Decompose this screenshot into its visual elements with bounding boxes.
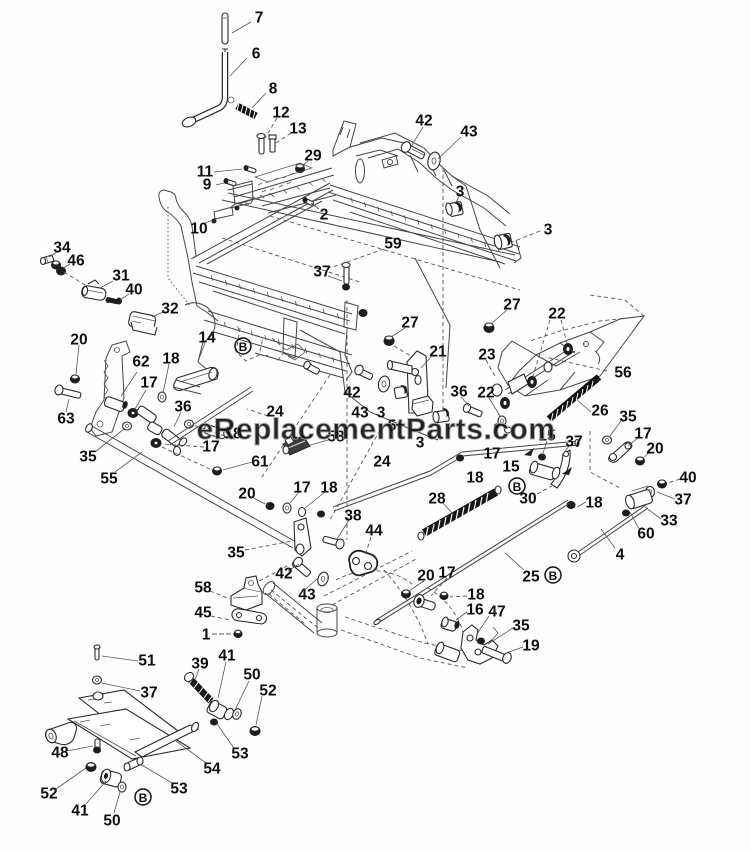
svg-text:56: 56 <box>614 365 632 382</box>
svg-text:45: 45 <box>194 605 212 622</box>
svg-text:47: 47 <box>488 604 505 621</box>
svg-text:52: 52 <box>259 683 276 700</box>
svg-text:44: 44 <box>365 523 383 540</box>
svg-text:61: 61 <box>251 454 269 471</box>
svg-text:16: 16 <box>466 602 484 619</box>
svg-text:42: 42 <box>343 385 360 402</box>
svg-text:37: 37 <box>140 685 157 702</box>
svg-text:19: 19 <box>522 638 540 655</box>
svg-text:40: 40 <box>125 282 142 299</box>
svg-text:42: 42 <box>275 566 292 583</box>
svg-text:7: 7 <box>255 10 264 27</box>
svg-text:2: 2 <box>320 207 329 224</box>
svg-text:36: 36 <box>174 399 192 416</box>
svg-text:58: 58 <box>194 580 212 597</box>
svg-text:22: 22 <box>477 385 494 402</box>
svg-text:18: 18 <box>585 495 603 512</box>
svg-text:18: 18 <box>466 470 484 487</box>
svg-text:41: 41 <box>71 803 89 820</box>
svg-text:17: 17 <box>438 565 455 582</box>
svg-text:35: 35 <box>619 409 637 426</box>
svg-text:13: 13 <box>289 121 307 138</box>
svg-text:1: 1 <box>202 627 211 644</box>
svg-text:24: 24 <box>373 454 391 471</box>
svg-text:20: 20 <box>70 332 87 349</box>
svg-text:36: 36 <box>450 384 468 401</box>
svg-text:27: 27 <box>401 315 418 332</box>
svg-text:42: 42 <box>415 113 432 130</box>
svg-text:41: 41 <box>218 648 236 665</box>
svg-text:17: 17 <box>483 446 500 463</box>
svg-text:35: 35 <box>227 545 245 562</box>
svg-text:17: 17 <box>293 480 310 497</box>
svg-text:9: 9 <box>203 177 212 194</box>
svg-text:3: 3 <box>544 222 553 239</box>
svg-text:B: B <box>549 569 558 583</box>
svg-text:B: B <box>513 480 522 494</box>
svg-text:51: 51 <box>138 653 156 670</box>
svg-text:23: 23 <box>478 347 496 364</box>
svg-text:43: 43 <box>298 587 316 604</box>
svg-text:28: 28 <box>428 491 446 508</box>
svg-text:29: 29 <box>304 148 322 165</box>
svg-text:40: 40 <box>679 470 696 487</box>
svg-text:25: 25 <box>522 569 540 586</box>
svg-text:52: 52 <box>40 786 57 803</box>
svg-text:6: 6 <box>252 46 261 63</box>
svg-text:12: 12 <box>272 105 289 122</box>
svg-text:37: 37 <box>313 264 330 281</box>
svg-text:55: 55 <box>100 471 118 488</box>
svg-text:63: 63 <box>57 411 75 428</box>
svg-text:3: 3 <box>456 184 465 201</box>
svg-text:59: 59 <box>384 236 402 253</box>
svg-text:eReplacementParts.com: eReplacementParts.com <box>197 413 556 446</box>
svg-text:53: 53 <box>170 781 188 798</box>
svg-text:10: 10 <box>190 221 207 238</box>
svg-text:20: 20 <box>417 568 434 585</box>
svg-text:26: 26 <box>591 403 609 420</box>
svg-text:8: 8 <box>269 81 278 98</box>
svg-text:60: 60 <box>637 526 654 543</box>
svg-text:54: 54 <box>203 761 221 778</box>
svg-text:46: 46 <box>67 253 85 270</box>
svg-text:14: 14 <box>198 330 216 347</box>
svg-text:18: 18 <box>162 351 180 368</box>
svg-text:22: 22 <box>548 306 565 323</box>
svg-text:50: 50 <box>103 813 120 830</box>
svg-text:37: 37 <box>565 434 582 451</box>
svg-text:27: 27 <box>503 297 520 314</box>
svg-text:37: 37 <box>674 492 691 509</box>
svg-text:21: 21 <box>429 344 447 361</box>
svg-text:38: 38 <box>344 508 362 525</box>
svg-text:35: 35 <box>79 449 97 466</box>
svg-text:53: 53 <box>231 746 249 763</box>
svg-text:15: 15 <box>502 459 520 476</box>
svg-text:35: 35 <box>512 618 530 635</box>
svg-text:18: 18 <box>320 480 338 497</box>
svg-text:48: 48 <box>51 745 69 762</box>
svg-text:20: 20 <box>646 441 663 458</box>
svg-text:39: 39 <box>191 656 209 673</box>
svg-text:B: B <box>139 791 148 805</box>
svg-text:4: 4 <box>616 547 625 564</box>
svg-text:33: 33 <box>660 513 678 530</box>
svg-text:20: 20 <box>238 486 255 503</box>
svg-text:17: 17 <box>140 375 157 392</box>
svg-text:50: 50 <box>243 667 260 684</box>
svg-text:43: 43 <box>460 124 478 141</box>
svg-text:32: 32 <box>161 301 178 318</box>
svg-text:62: 62 <box>132 354 149 371</box>
svg-text:B: B <box>239 340 248 354</box>
